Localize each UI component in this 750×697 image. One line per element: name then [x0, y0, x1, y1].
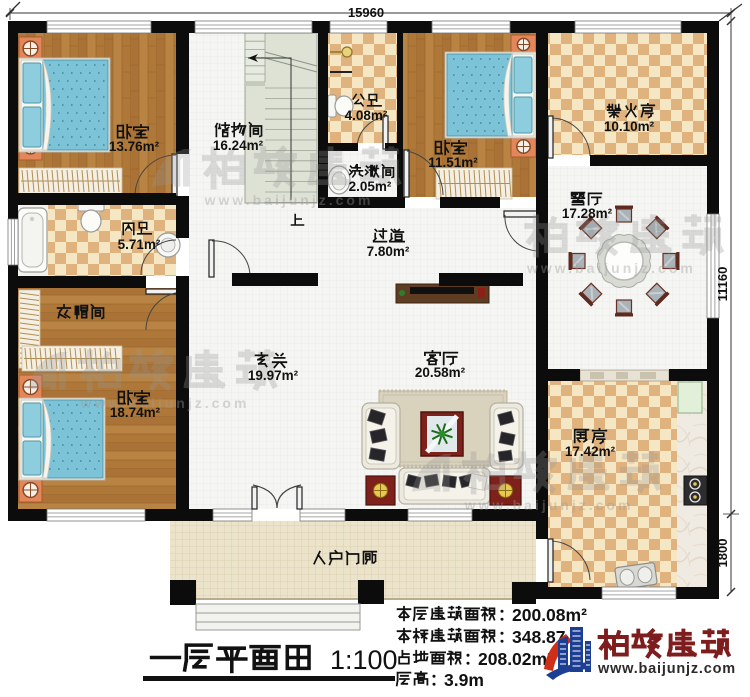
svg-text:11160: 11160 [715, 267, 730, 302]
svg-text:16.24m²: 16.24m² [213, 138, 264, 153]
svg-text:2.05m²: 2.05m² [349, 179, 392, 194]
svg-text:4.08m²: 4.08m² [345, 108, 388, 123]
svg-text:13.76m²: 13.76m² [109, 139, 160, 154]
svg-text:1:100: 1:100 [330, 645, 398, 675]
svg-text:17.28m²: 17.28m² [562, 206, 613, 221]
svg-text:www.baijunjz.com: www.baijunjz.com [597, 661, 736, 677]
svg-text:www.baijunjz.com: www.baijunjz.com [526, 260, 696, 276]
svg-text:3.9m: 3.9m [444, 670, 484, 690]
svg-text:1800: 1800 [715, 539, 730, 568]
svg-text:5.71m²: 5.71m² [118, 237, 161, 252]
svg-text:17.42m²: 17.42m² [565, 444, 616, 459]
svg-text:www.baijunjz.com: www.baijunjz.com [204, 192, 374, 208]
svg-text:208.02m²: 208.02m² [478, 649, 553, 669]
svg-text:11.51m²: 11.51m² [428, 155, 478, 170]
svg-text:www.baijunjz.com: www.baijunjz.com [80, 395, 250, 411]
svg-text:200.08m²: 200.08m² [512, 605, 587, 625]
svg-text:7.80m²: 7.80m² [367, 244, 410, 259]
svg-text:www.baijunjz.com: www.baijunjz.com [464, 497, 634, 513]
svg-text:10.10m²: 10.10m² [604, 119, 655, 134]
svg-text:20.58m²: 20.58m² [415, 365, 466, 380]
svg-text:18.74m²: 18.74m² [110, 405, 161, 420]
svg-text:19.97m²: 19.97m² [248, 368, 299, 383]
svg-text:15960: 15960 [348, 5, 384, 20]
